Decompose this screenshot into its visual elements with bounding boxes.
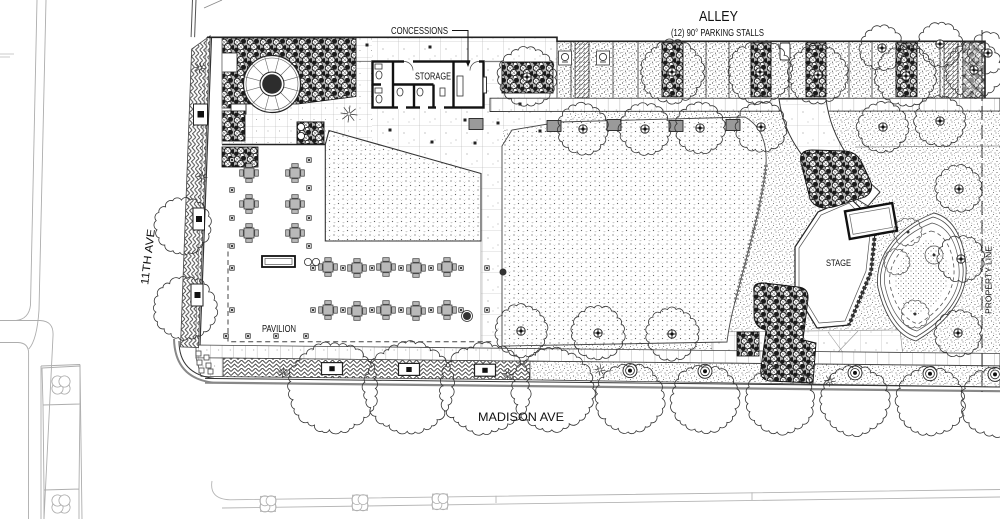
svg-text:(12) 90° PARKING STALLS: (12) 90° PARKING STALLS	[671, 28, 764, 39]
svg-text:STORAGE: STORAGE	[415, 71, 451, 83]
svg-text:PROPERTY LINE: PROPERTY LINE	[985, 246, 994, 314]
svg-text:PAVILION: PAVILION	[262, 323, 296, 335]
svg-text:CONCESSIONS: CONCESSIONS	[391, 26, 448, 37]
svg-text:STAGE: STAGE	[826, 258, 851, 269]
svg-text:MADISON AVE: MADISON AVE	[478, 410, 564, 424]
svg-text:ALLEY: ALLEY	[699, 8, 738, 25]
